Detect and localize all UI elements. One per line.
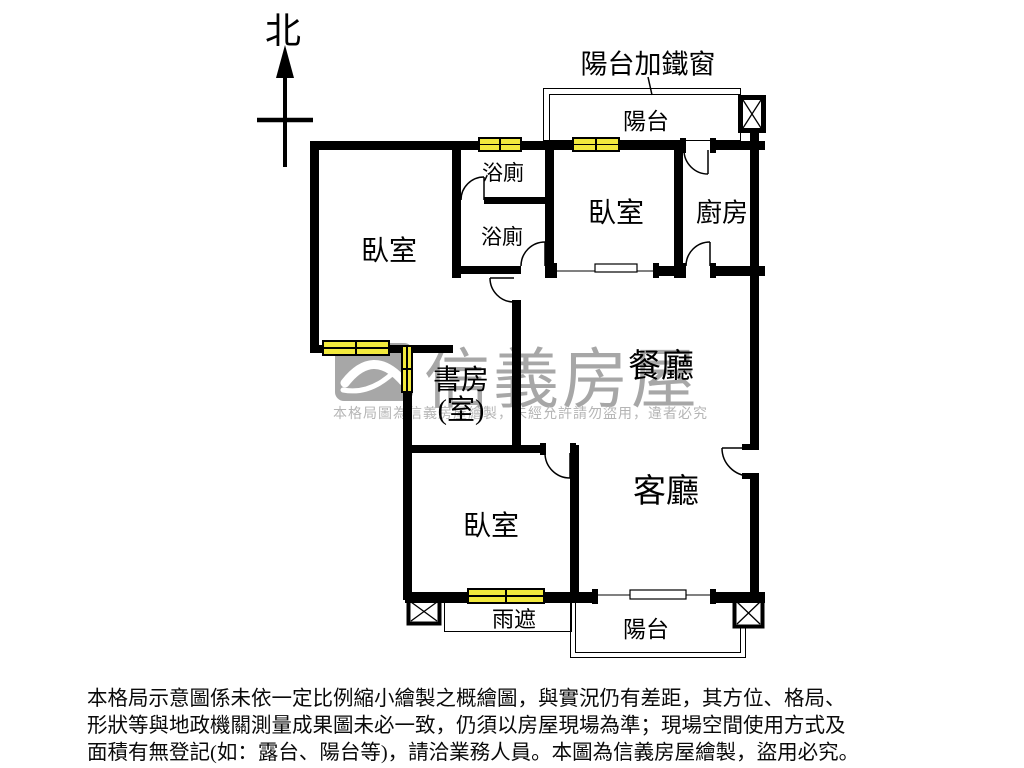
jamb-bedroom-door-right xyxy=(570,443,576,455)
window-bedroom-left xyxy=(322,340,390,356)
jamb-balcony-slider-left xyxy=(592,589,598,604)
door-kitchen-dining xyxy=(686,242,710,266)
window-study-side xyxy=(401,345,413,393)
study-label-line2: (室) xyxy=(438,388,485,428)
living-label: 客廳 xyxy=(633,464,699,512)
disclaimer-text: 本格局示意圖係未依一定比例縮小繪製之概繪圖，與實況仍有差距，其方位、格局、 形狀… xyxy=(87,686,859,767)
wall-outer-right-lower xyxy=(750,476,759,600)
jamb-balcony-slider-right xyxy=(710,589,716,604)
floor-plan-canvas: 信義房屋 本格局圖為信義房屋繪製，未經允許請勿盜用，違者必究 xyxy=(0,0,1024,768)
disclaimer-line-3: 面積有無登記(如：露台、陽台等)，請洽業務人員。本圖為信義房屋繪製，盜用必究。 xyxy=(87,740,859,767)
balcony-bottom-label: 陽台 xyxy=(623,610,669,644)
door-kitchen-balcony xyxy=(684,150,708,174)
door-study xyxy=(490,278,514,302)
wall-study-right xyxy=(512,300,521,452)
rain-shade-label: 雨遮 xyxy=(492,602,536,634)
wall-bedroom-bottom-top xyxy=(403,445,545,453)
jamb-kitchen-door-right xyxy=(710,263,716,278)
wall-bathroom1-bottom xyxy=(484,197,550,204)
kitchen-label: 廚房 xyxy=(696,193,748,230)
wall-outer-right-upper xyxy=(750,129,759,448)
slider-balcony-bottom xyxy=(597,590,712,599)
wall-bathroom-right xyxy=(545,141,554,278)
wall-bathroom2-bottom xyxy=(452,266,521,274)
jamb-slider-right xyxy=(653,263,659,278)
jamb-bedroom-door-left xyxy=(540,443,546,455)
jamb-entrance-bottom xyxy=(742,473,759,479)
dining-label: 餐廳 xyxy=(628,339,694,387)
jamb-entrance-top xyxy=(742,444,759,450)
bathroom1-label: 浴廁 xyxy=(482,157,524,187)
disclaimer-line-2: 形狀等與地政機關測量成果圖未必一致，仍須以房屋現場為準；現場空間使用方式及 xyxy=(87,713,859,740)
disclaimer-line-1: 本格局示意圖係未依一定比例縮小繪製之概繪圖，與實況仍有差距，其方位、格局、 xyxy=(87,686,859,713)
north-label: 北 xyxy=(265,2,301,54)
balcony-note-label: 陽台加鐵窗 xyxy=(581,43,716,82)
door-bathroom-2 xyxy=(521,242,545,266)
wall-bedroom-bottom-right xyxy=(570,445,579,597)
jamb-top-door-left xyxy=(680,138,686,153)
window-bedroom-top xyxy=(572,137,620,152)
north-arrow-icon xyxy=(257,45,313,167)
bedroom-left-label: 臥室 xyxy=(361,229,417,269)
jamb-kitchen-door-left xyxy=(680,263,686,278)
door-bedroom-bottom xyxy=(545,453,570,478)
slider-bedroom-top xyxy=(557,264,653,272)
bathroom2-label: 浴廁 xyxy=(481,221,523,251)
jamb-slider-left xyxy=(551,263,557,278)
window-bathroom1-top xyxy=(478,137,522,152)
column-bottom-right xyxy=(735,600,763,627)
wall-bathroom-left xyxy=(452,141,461,278)
column-top-right xyxy=(741,98,764,131)
bedroom-top-label: 臥室 xyxy=(588,191,644,231)
wall-bottom-right-segment xyxy=(712,592,765,603)
jamb-top-door-right xyxy=(710,138,716,153)
bedroom-bottom-label: 臥室 xyxy=(463,504,519,544)
door-bathroom-1 xyxy=(461,177,484,200)
balcony-top-label: 陽台 xyxy=(623,102,669,136)
wall-outer-left xyxy=(310,141,319,353)
column-bottom-left xyxy=(409,600,440,624)
wall-kitchen-left xyxy=(674,141,683,278)
door-entrance xyxy=(722,448,750,476)
wall-study-left xyxy=(403,390,412,600)
